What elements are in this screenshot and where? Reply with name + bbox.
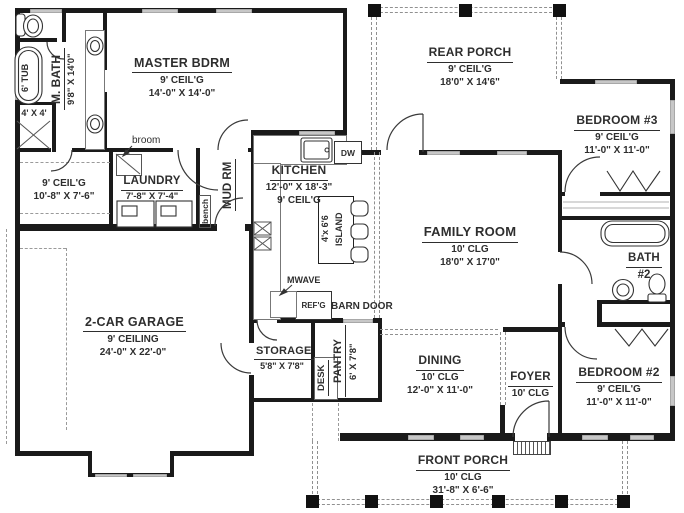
room-dims: 24'-0" X 22'-0" — [83, 346, 183, 359]
room-ceiling: 9' CEIL'G — [562, 131, 672, 144]
room-name: MASTER BDRM — [132, 55, 232, 73]
room-label-master-closet: 9' CEIL'G 10'-8" X 7'-6" — [18, 177, 110, 203]
room-name: FOYER — [508, 370, 553, 387]
sink-icon — [91, 41, 100, 52]
door-arc — [218, 120, 248, 150]
room-name: DINING — [416, 353, 463, 371]
room-name: BEDROOM #2 — [576, 365, 661, 383]
linen-shelves — [563, 202, 669, 208]
room-name: REAR PORCH — [427, 45, 514, 63]
dryer-icon — [161, 206, 176, 216]
room-label-bath2: BATH #2 — [622, 247, 666, 283]
room-ceiling: 10' CLG — [503, 387, 558, 400]
room-name: LAUNDRY — [121, 174, 182, 191]
room-number: #2 — [622, 268, 666, 283]
room-label-garage: 2-CAR GARAGE 9' CEILING 24'-0" X 22'-0" — [83, 312, 183, 359]
room-name: FAMILY ROOM — [422, 224, 519, 243]
sink-icon — [91, 119, 100, 130]
door-arc — [513, 401, 549, 437]
barn-door-label: BARN DOOR — [331, 301, 393, 312]
shower-pan — [17, 121, 50, 149]
room-name: KITCHEN — [270, 163, 329, 181]
room-label-master-bdrm: MASTER BDRM 9' CEIL'G 14'-0" X 14'-0" — [112, 53, 252, 100]
toilet-icon — [648, 294, 666, 302]
kitchen-sink-faucet — [325, 148, 329, 152]
room-dims-m-bath: 9'8" X 14'0" — [66, 46, 77, 112]
room-dims: 12'-0" X 11'-0" — [390, 384, 490, 397]
shower-label: 4' X 4' — [15, 108, 53, 118]
room-name: 2-CAR GARAGE — [83, 314, 186, 332]
room-label-pantry: PANTRY — [332, 325, 346, 397]
room-ceiling: 10' CLG — [393, 471, 533, 484]
room-dims: 18'0" X 17'0" — [395, 256, 545, 269]
room-label-family-room: FAMILY ROOM 10' CLG 18'0" X 17'0" — [395, 222, 545, 269]
room-name: BATH — [626, 251, 662, 268]
room-ceiling: 10' CLG — [390, 371, 490, 384]
room-dims: 5'8" X 7'8" — [254, 361, 310, 373]
washer-icon — [122, 206, 137, 216]
column-block-hatch — [254, 222, 271, 235]
room-ceiling: 10' CLG — [395, 243, 545, 256]
desk-label: DESK — [316, 360, 329, 396]
room-ceiling: 9' CEIL'G — [18, 177, 110, 190]
island-label: 4'x 6'6 — [320, 199, 330, 259]
room-dims: 31'-8" X 6'-6" — [393, 484, 533, 497]
room-label-front-porch: FRONT PORCH 10' CLG 31'-8" X 6'-6" — [393, 450, 533, 497]
door-arc — [565, 157, 600, 192]
stool-icon — [351, 201, 368, 216]
room-name: BEDROOM #3 — [574, 113, 659, 131]
toilet-icon — [28, 19, 39, 33]
room-dims: 18'0" X 14'6" — [400, 76, 540, 89]
room-dims: 11'-0" X 11'-0" — [562, 144, 672, 157]
broom-leader-arrow — [123, 150, 129, 156]
tub-label: 6' TUB — [20, 59, 30, 97]
room-label-foyer: FOYER 10' CLG — [503, 366, 558, 400]
room-dims-pantry: 6' X 7'8" — [348, 328, 359, 396]
bench-label: bench — [199, 195, 211, 228]
tub-icon — [605, 225, 665, 243]
bifold-closet-door — [607, 171, 660, 191]
room-dims: 11'-0" X 11'-0" — [564, 396, 674, 409]
room-ceiling: 9' CEIL'G — [254, 194, 344, 207]
room-dims: 14'-0" X 14'-0" — [112, 87, 252, 100]
room-ceiling: 9' CEILING — [83, 333, 183, 346]
door-arc — [257, 320, 277, 340]
room-ceiling: 9' CEIL'G — [112, 74, 252, 87]
room-ceiling: 9' CEIL'G — [400, 63, 540, 76]
room-dims: 10'-8" X 7'-6" — [18, 190, 110, 203]
room-name: STORAGE — [254, 344, 314, 360]
door-arc — [565, 327, 597, 359]
room-name: FRONT PORCH — [416, 453, 510, 471]
room-dims: 12'-0" X 18'-3" — [254, 181, 344, 194]
room-ceiling: 9' CEIL'G — [564, 383, 674, 396]
room-label-bedroom2: BEDROOM #2 9' CEIL'G 11'-0" X 11'-0" — [564, 362, 674, 409]
door-arc — [560, 252, 592, 284]
room-label-kitchen: KITCHEN 12'-0" X 18'-3" 9' CEIL'G — [254, 160, 344, 207]
door-arc — [51, 150, 72, 171]
stool-icon — [351, 224, 368, 239]
mwave-label: MWAVE — [287, 275, 320, 285]
room-label-laundry: LAUNDRY 7'-8" X 7'-4" — [116, 170, 188, 203]
room-label-bedroom3: BEDROOM #3 9' CEIL'G 11'-0" X 11'-0" — [562, 110, 672, 157]
stool-icon — [351, 247, 368, 262]
sink-icon — [617, 284, 629, 296]
broom-label: broom — [132, 135, 160, 146]
room-label-m-bath: M. BATH — [49, 48, 65, 110]
room-label-mud-rm: MUD RM — [222, 159, 236, 211]
island-label: ISLAND — [334, 199, 344, 259]
room-dims: 7'-8" X 7'-4" — [116, 191, 188, 203]
room-label-storage: STORAGE 5'8" X 7'8" — [254, 340, 310, 372]
floor-plan-canvas: DW REF'G — [0, 0, 684, 513]
door-arc — [387, 114, 423, 152]
door-arc — [221, 343, 251, 373]
bifold-closet-door — [615, 329, 668, 346]
room-label-dining: DINING 10' CLG 12'-0" X 11'-0" — [390, 350, 490, 397]
column-block-hatch — [254, 237, 271, 250]
room-label-rear-porch: REAR PORCH 9' CEIL'G 18'0" X 14'6" — [400, 42, 540, 89]
